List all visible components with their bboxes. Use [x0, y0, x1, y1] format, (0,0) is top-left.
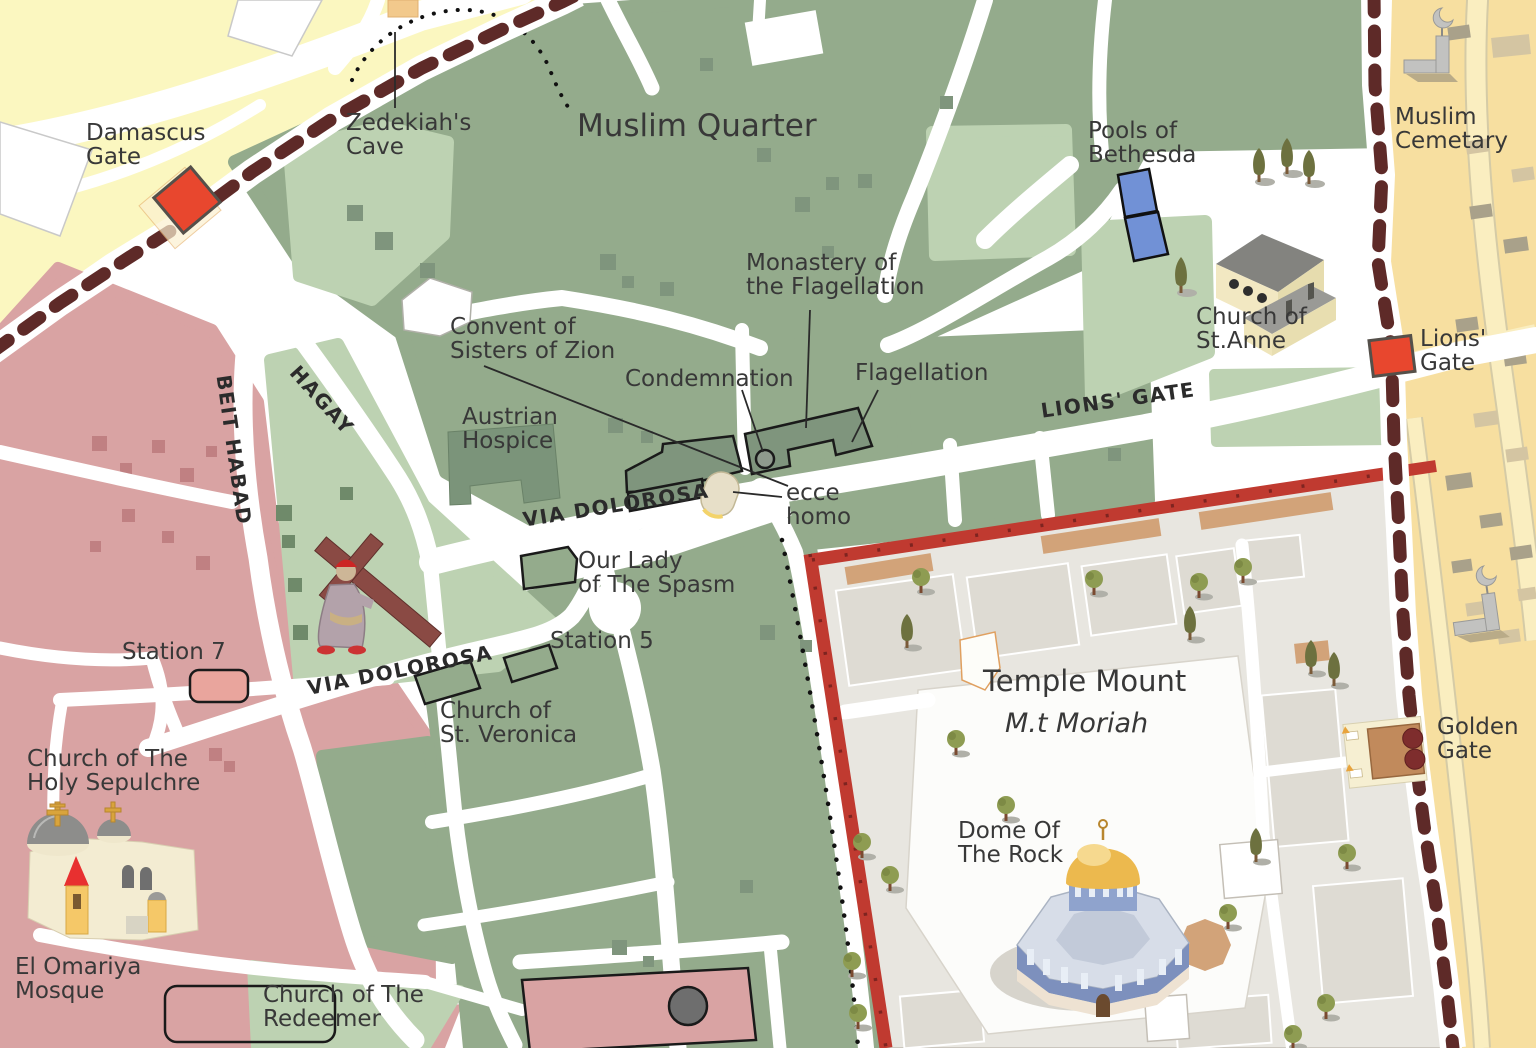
golden-gate-icon	[1341, 716, 1427, 788]
label-station-5: Station 5	[550, 630, 654, 654]
label-lions-gate: Lions' Gate	[1420, 328, 1486, 376]
label-church-of-the-redeemer: Church of The Redeemer	[263, 984, 424, 1032]
label-austrian-hospice: Austrian Hospice	[462, 406, 558, 454]
label-church-of-st-anne: Church of St.Anne	[1196, 306, 1307, 354]
label-dome-of-the-rock: Dome Of The Rock	[958, 820, 1063, 868]
station-7-box	[190, 670, 248, 702]
label-muslim-cemetary: Muslim Cemetary	[1395, 106, 1508, 154]
label-church-of-st-veronica: Church of St. Veronica	[440, 700, 577, 748]
old-city-jerusalem-map: Damascus Gate Zedekiah's Cave Muslim Qua…	[0, 0, 1536, 1048]
redeemer-church-icon	[522, 968, 756, 1048]
label-ecce-homo: ecce homo	[786, 482, 851, 530]
label-mt-moriah: M.t Moriah	[1005, 710, 1148, 738]
our-lady-spasm-box	[521, 547, 577, 589]
label-our-lady-of-the-spasm: Our Lady of The Spasm	[578, 550, 735, 598]
label-flagellation: Flagellation	[855, 362, 988, 386]
map-canvas	[0, 0, 1536, 1048]
label-pools-of-bethesda: Pools of Bethesda	[1088, 120, 1196, 168]
label-church-of-the-holy-sepulchre: Church of The Holy Sepulchre	[27, 748, 200, 796]
label-convent-of-sisters-of-zion: Convent of Sisters of Zion	[450, 316, 615, 364]
label-monastery-of-the-flagellation: Monastery of the Flagellation	[746, 252, 924, 300]
label-condemnation: Condemnation	[625, 368, 794, 392]
label-golden-gate: Golden Gate	[1437, 716, 1519, 764]
label-damascus-gate: Damascus Gate	[86, 122, 206, 170]
label-temple-mount: Temple Mount	[983, 666, 1186, 696]
label-muslim-quarter: Muslim Quarter	[577, 110, 817, 142]
label-station-7: Station 7	[122, 641, 226, 665]
label-el-omariya-mosque: El Omariya Mosque	[15, 956, 141, 1004]
label-zedekiahs-cave: Zedekiah's Cave	[346, 112, 471, 160]
lions-gate-icon	[1369, 336, 1415, 377]
